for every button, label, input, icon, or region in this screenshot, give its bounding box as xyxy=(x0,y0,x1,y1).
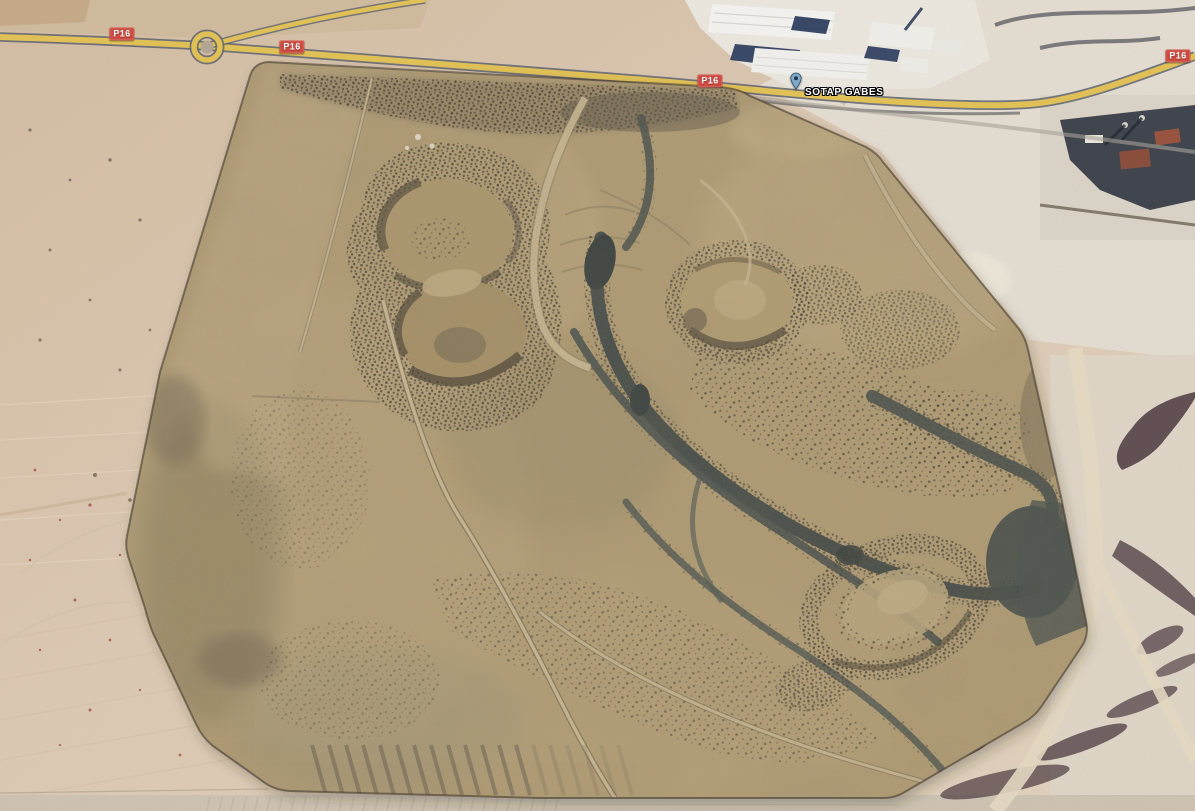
pin-center-dot xyxy=(794,76,798,80)
global-grain xyxy=(0,0,1195,811)
road-badge-p16-1: P16 xyxy=(109,27,134,40)
road-badge-label: P16 xyxy=(113,28,130,38)
place-marker-label: SOTAP GABES xyxy=(805,87,883,98)
place-marker-sotap-gabes[interactable]: SOTAP GABES xyxy=(789,72,879,100)
road-badge-p16-3: P16 xyxy=(697,74,722,87)
place-pin-icon[interactable] xyxy=(789,72,803,90)
road-badge-label: P16 xyxy=(701,75,718,85)
pin-body xyxy=(791,73,801,89)
road-badge-p16-4: P16 xyxy=(1165,49,1190,62)
road-badge-p16-2: P16 xyxy=(279,40,304,53)
earth-map-viewport[interactable]: P16 P16 P16 P16 SOTAP GABES xyxy=(0,0,1195,811)
road-badge-label: P16 xyxy=(1169,50,1186,60)
road-badge-label: P16 xyxy=(283,41,300,51)
satellite-scene xyxy=(0,0,1195,811)
